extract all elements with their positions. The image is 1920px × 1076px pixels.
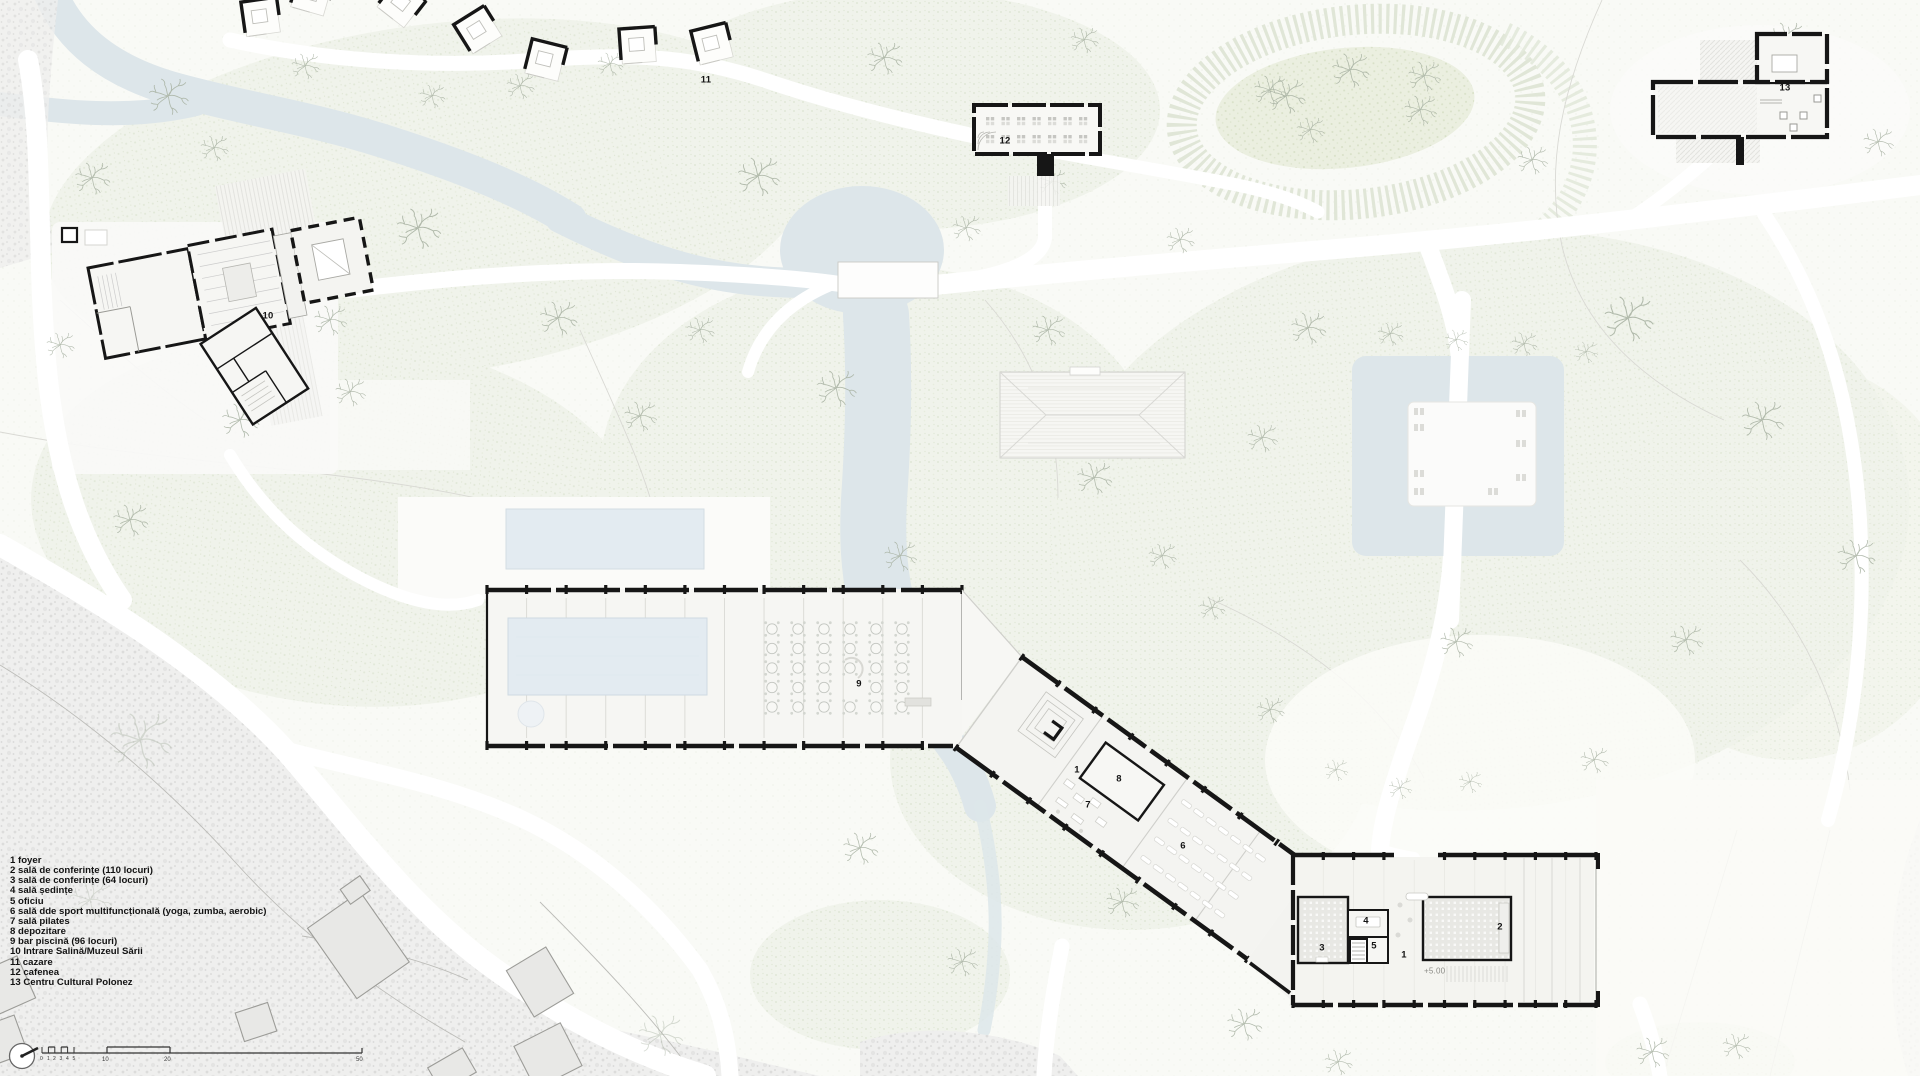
column-tick <box>1291 1000 1294 1008</box>
chair <box>868 673 871 676</box>
chair <box>907 660 910 663</box>
chair <box>764 641 767 644</box>
chair <box>907 621 910 624</box>
chair <box>829 634 832 637</box>
chair <box>829 641 832 644</box>
chair <box>868 699 871 702</box>
entrance <box>1037 154 1054 176</box>
column-tick <box>762 741 765 750</box>
chair <box>991 122 994 125</box>
small-structure <box>62 228 77 242</box>
column-tick <box>683 741 686 750</box>
chair <box>803 621 806 624</box>
column-tick <box>881 585 884 594</box>
chair <box>855 621 858 624</box>
table <box>793 702 803 712</box>
chair <box>816 699 819 702</box>
chair <box>907 641 910 644</box>
chair <box>1048 122 1051 125</box>
building-conference-center <box>1291 852 1598 1008</box>
scale-tick: 10 <box>102 1057 109 1063</box>
chair <box>1033 140 1036 143</box>
chair <box>1037 122 1040 125</box>
table <box>819 624 829 634</box>
small-structure <box>85 230 107 245</box>
column-tick <box>1594 852 1597 860</box>
chair <box>1084 122 1087 125</box>
chair <box>764 699 767 702</box>
label-cultural-center: 13 <box>1780 83 1791 94</box>
chair <box>842 653 845 656</box>
chair <box>777 699 780 702</box>
column-tick <box>1564 1000 1567 1008</box>
chair <box>881 692 884 695</box>
chair <box>1022 140 1025 143</box>
column-tick <box>683 585 686 594</box>
column-tick <box>525 585 528 594</box>
chair <box>894 634 897 637</box>
table <box>793 643 803 653</box>
label-foyer-upper: 1 <box>1074 765 1079 776</box>
column-tick <box>1534 1000 1537 1008</box>
column-tick <box>1352 852 1355 860</box>
chair <box>1037 140 1040 143</box>
chair <box>764 673 767 676</box>
chair <box>790 673 793 676</box>
chair <box>803 692 806 695</box>
chair <box>991 117 994 120</box>
column-tick <box>842 741 845 750</box>
chair <box>991 140 994 143</box>
chair <box>868 660 871 663</box>
chair <box>868 712 871 715</box>
table <box>845 624 855 634</box>
chair <box>881 680 884 683</box>
chair <box>1079 140 1082 143</box>
table <box>897 643 907 653</box>
chair <box>790 653 793 656</box>
scale-tick: 50 <box>356 1057 363 1063</box>
chair <box>907 653 910 656</box>
scale-tick: 4 <box>66 1056 69 1062</box>
column-tick <box>1473 1000 1476 1008</box>
chair <box>764 660 767 663</box>
chair <box>1033 135 1036 138</box>
table <box>767 643 777 653</box>
chair <box>1064 117 1067 120</box>
column-tick <box>1564 852 1567 860</box>
chair <box>842 660 845 663</box>
chair <box>764 621 767 624</box>
chair <box>777 673 780 676</box>
chair <box>1053 117 1056 120</box>
chair <box>1002 122 1005 125</box>
table <box>871 702 881 712</box>
table <box>767 682 777 692</box>
chair <box>907 680 910 683</box>
chair <box>842 641 845 644</box>
chair <box>777 653 780 656</box>
chair <box>764 712 767 715</box>
chair <box>816 621 819 624</box>
chair <box>842 673 845 676</box>
chair <box>1037 135 1040 138</box>
hot-tub <box>518 701 544 727</box>
label-oficiu: 5 <box>1371 941 1376 952</box>
chair <box>868 641 871 644</box>
table <box>871 682 881 692</box>
chair <box>1064 122 1067 125</box>
chair <box>1017 135 1020 138</box>
chair <box>842 712 845 715</box>
pond-deck <box>1408 402 1536 506</box>
label-salina: 10 <box>263 311 274 322</box>
chair <box>803 712 806 715</box>
chair <box>1022 117 1025 120</box>
chair <box>855 673 858 676</box>
column-tick <box>1413 1000 1416 1008</box>
chair <box>894 680 897 683</box>
scale-tick: 1 <box>47 1056 50 1062</box>
chair <box>829 692 832 695</box>
chair <box>816 712 819 715</box>
chair <box>855 653 858 656</box>
chair <box>894 692 897 695</box>
chair <box>816 660 819 663</box>
chair <box>855 641 858 644</box>
chair <box>1006 117 1009 120</box>
chair <box>1064 140 1067 143</box>
chair <box>986 140 989 143</box>
chair <box>764 634 767 637</box>
chair <box>1053 140 1056 143</box>
chair <box>1002 117 1005 120</box>
column-tick <box>881 741 884 750</box>
table <box>845 702 855 712</box>
chair <box>1017 122 1020 125</box>
outdoor-pool <box>506 509 704 569</box>
existing-roof-building <box>1000 367 1185 458</box>
chair <box>790 641 793 644</box>
column-tick <box>1594 1000 1597 1008</box>
table <box>767 624 777 634</box>
chair <box>1068 140 1071 143</box>
chair <box>1033 117 1036 120</box>
chair <box>790 634 793 637</box>
label-pilates: 7 <box>1085 800 1090 811</box>
table <box>793 624 803 634</box>
chair <box>803 699 806 702</box>
chair <box>842 634 845 637</box>
label-sedinte: 4 <box>1363 916 1368 927</box>
chair <box>881 660 884 663</box>
chair <box>1079 117 1082 120</box>
column-tick <box>644 741 647 750</box>
table <box>897 682 907 692</box>
table <box>767 663 777 673</box>
chair <box>842 699 845 702</box>
column-tick <box>604 741 607 750</box>
table <box>871 643 881 653</box>
column-tick <box>1504 1000 1507 1008</box>
chair <box>777 641 780 644</box>
chair <box>829 680 832 683</box>
chair <box>777 692 780 695</box>
column-tick <box>1534 852 1537 860</box>
label-pool-bar: 9 <box>856 679 861 690</box>
chair <box>1048 117 1051 120</box>
column-tick <box>723 585 726 594</box>
chair <box>881 641 884 644</box>
chair <box>881 621 884 624</box>
label-sport-hall: 6 <box>1180 841 1185 852</box>
label-cazare: 11 <box>701 75 711 86</box>
chair <box>1068 117 1071 120</box>
chair <box>1033 122 1036 125</box>
chair <box>1022 135 1025 138</box>
column-tick <box>604 585 607 594</box>
skylight <box>1772 55 1797 72</box>
chair <box>803 680 806 683</box>
column-tick <box>1322 1000 1325 1008</box>
table <box>819 663 829 673</box>
legend-item: 13 Centru Cultural Polonez <box>10 978 266 988</box>
chair <box>868 680 871 683</box>
chair <box>868 653 871 656</box>
chair <box>790 712 793 715</box>
chair <box>1053 135 1056 138</box>
scale-tick: 3 <box>60 1056 63 1062</box>
chair <box>829 660 832 663</box>
chair <box>894 653 897 656</box>
bridge <box>838 262 938 298</box>
chair <box>991 135 994 138</box>
chair <box>1017 140 1020 143</box>
column-tick <box>802 585 805 594</box>
table <box>871 624 881 634</box>
chair <box>881 653 884 656</box>
chair <box>829 712 832 715</box>
table <box>793 663 803 673</box>
column-tick <box>1352 1000 1355 1008</box>
chair <box>803 653 806 656</box>
table <box>897 663 907 673</box>
chair <box>1084 140 1087 143</box>
chair <box>1048 140 1051 143</box>
label-depozitare: 8 <box>1116 774 1121 785</box>
chair <box>764 680 767 683</box>
table <box>845 643 855 653</box>
chair <box>1048 135 1051 138</box>
label-conf-64: 3 <box>1319 943 1324 954</box>
chair <box>1084 117 1087 120</box>
chair <box>907 692 910 695</box>
column-tick <box>1443 1000 1446 1008</box>
chair <box>855 660 858 663</box>
chair <box>1053 122 1056 125</box>
chair <box>986 117 989 120</box>
chair <box>790 699 793 702</box>
entrance <box>1736 137 1744 165</box>
scale-tick: 5 <box>73 1056 76 1062</box>
chair <box>881 712 884 715</box>
table <box>845 663 855 673</box>
chair <box>1006 122 1009 125</box>
chair <box>803 660 806 663</box>
chair <box>868 692 871 695</box>
chair <box>816 673 819 676</box>
label-conf-110: 2 <box>1497 922 1502 933</box>
chair <box>777 712 780 715</box>
table <box>871 663 881 673</box>
column-tick <box>1291 852 1294 860</box>
scale-tick: 2 <box>53 1056 56 1062</box>
column-tick <box>1382 1000 1385 1008</box>
chair <box>894 641 897 644</box>
chair <box>855 634 858 637</box>
legend-item: 4 sală ședințe <box>10 886 266 896</box>
column-tick <box>485 741 488 750</box>
chair <box>894 699 897 702</box>
chair <box>1068 135 1071 138</box>
chair <box>790 621 793 624</box>
chair <box>1079 122 1082 125</box>
column-tick <box>723 741 726 750</box>
chair <box>816 634 819 637</box>
table <box>793 682 803 692</box>
table <box>819 702 829 712</box>
site-plan-drawing: 0 1 2 3 4 5 10 20 50 <box>0 0 1920 1076</box>
chair <box>803 673 806 676</box>
column-tick <box>1473 852 1476 860</box>
chair <box>829 621 832 624</box>
chair <box>803 641 806 644</box>
chair <box>986 135 989 138</box>
table <box>897 624 907 634</box>
chair <box>816 641 819 644</box>
chair <box>907 673 910 676</box>
chair <box>855 712 858 715</box>
table <box>819 682 829 692</box>
chair <box>986 122 989 125</box>
column-tick <box>802 741 805 750</box>
column-tick <box>1443 852 1446 860</box>
chair <box>907 634 910 637</box>
chair <box>790 660 793 663</box>
chair <box>816 653 819 656</box>
column-tick <box>1382 852 1385 860</box>
column-tick <box>485 585 488 594</box>
site-plan-canvas: 0 1 2 3 4 5 10 20 50 12 13 10 11 9 1 8 7… <box>0 0 1920 1076</box>
column-tick <box>525 741 528 750</box>
column-tick <box>1504 852 1507 860</box>
chair <box>1079 135 1082 138</box>
chair <box>777 680 780 683</box>
chair <box>790 680 793 683</box>
chair <box>868 634 871 637</box>
label-elevation: +5.00 <box>1424 967 1445 976</box>
chair <box>829 673 832 676</box>
table <box>767 702 777 712</box>
chair <box>764 653 767 656</box>
column-tick <box>842 585 845 594</box>
chair <box>816 692 819 695</box>
chair <box>1068 122 1071 125</box>
chair <box>907 712 910 715</box>
chair <box>829 699 832 702</box>
chair <box>1064 135 1067 138</box>
column-tick <box>1322 852 1325 860</box>
column-tick <box>762 585 765 594</box>
column-tick <box>921 741 924 750</box>
chair <box>894 621 897 624</box>
chair <box>894 673 897 676</box>
chair <box>894 660 897 663</box>
chair <box>764 692 767 695</box>
label-foyer-lower: 1 <box>1401 950 1406 961</box>
label-cafenea: 12 <box>1000 136 1011 147</box>
column-tick <box>921 585 924 594</box>
chair <box>777 634 780 637</box>
column-tick <box>565 741 568 750</box>
chair <box>1017 117 1020 120</box>
scale-tick: 20 <box>164 1057 171 1063</box>
chair <box>881 673 884 676</box>
chair <box>855 699 858 702</box>
chair <box>1037 117 1040 120</box>
chair <box>842 621 845 624</box>
chair <box>1022 122 1025 125</box>
chair <box>1084 135 1087 138</box>
chair <box>777 660 780 663</box>
chair <box>803 634 806 637</box>
chair <box>881 634 884 637</box>
chair <box>868 621 871 624</box>
column-tick <box>644 585 647 594</box>
chair <box>777 621 780 624</box>
chair <box>894 712 897 715</box>
chair <box>881 699 884 702</box>
chair <box>790 692 793 695</box>
legend: 1 foyer 2 sală de conferințe (110 locuri… <box>10 856 266 988</box>
table <box>819 643 829 653</box>
scale-tick: 0 <box>40 1056 43 1062</box>
chair <box>829 653 832 656</box>
chair <box>816 680 819 683</box>
column-tick <box>565 585 568 594</box>
